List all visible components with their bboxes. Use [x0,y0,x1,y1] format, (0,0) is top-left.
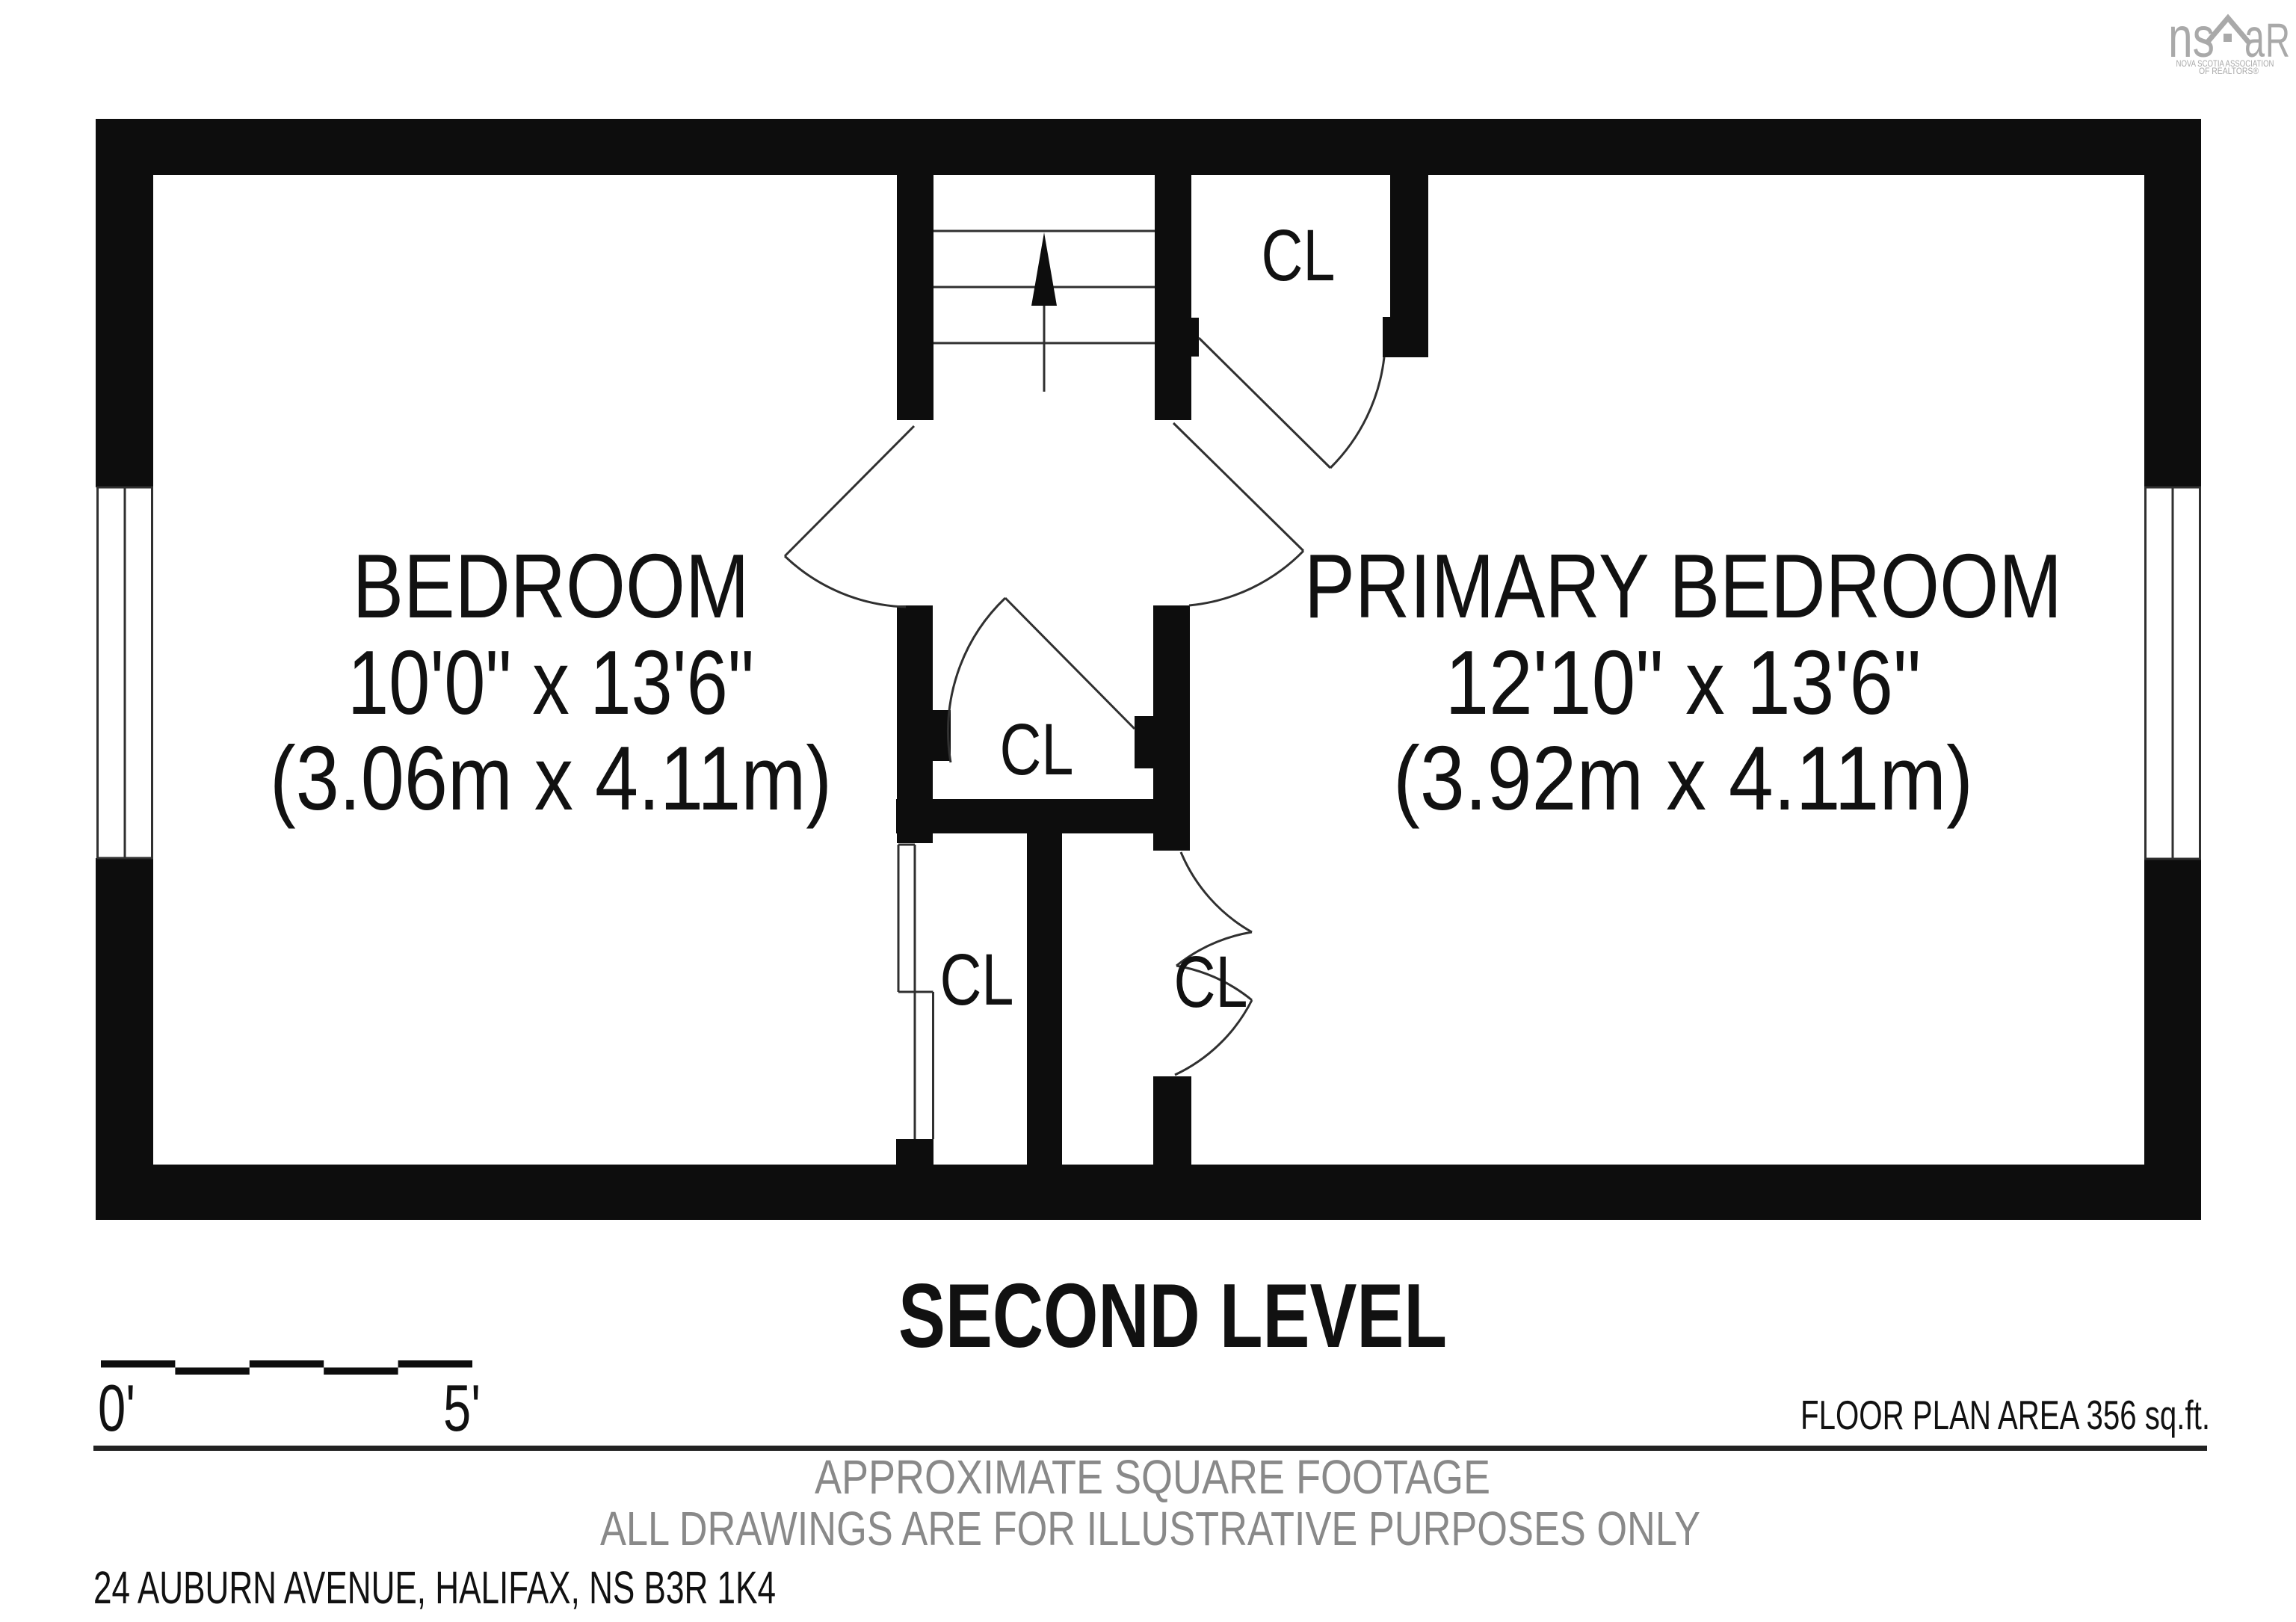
svg-text:0': 0' [98,1371,135,1445]
svg-text:OF REALTORS®: OF REALTORS® [2199,67,2259,76]
svg-text:SECOND LEVEL: SECOND LEVEL [898,1265,1447,1366]
svg-text:10'0" x 13'6": 10'0" x 13'6" [348,632,754,733]
svg-text:24 AUBURN AVENUE, HALIFAX, NS: 24 AUBURN AVENUE, HALIFAX, NS B3R 1K4 [93,1562,776,1613]
svg-text:CL: CL [1262,215,1336,296]
svg-text:FLOOR PLAN AREA 356 sq.ft.: FLOOR PLAN AREA 356 sq.ft. [1800,1392,2210,1438]
svg-text:BEDROOM: BEDROOM [353,535,750,637]
svg-text:CL: CL [1000,709,1074,790]
svg-text:CL: CL [940,939,1014,1020]
svg-text:12'10" x 13'6": 12'10" x 13'6" [1445,632,1922,733]
svg-text:ALL DRAWINGS ARE FOR ILLUSTRAT: ALL DRAWINGS ARE FOR ILLUSTRATIVE PURPOS… [600,1502,1700,1555]
svg-text:CL: CL [1174,941,1248,1023]
svg-text:(3.06m x 4.11m): (3.06m x 4.11m) [270,727,832,829]
svg-text:5': 5' [443,1371,481,1445]
svg-text:(3.92m x 4.11m): (3.92m x 4.11m) [1393,727,1973,829]
svg-text:APPROXIMATE SQUARE FOOTAGE: APPROXIMATE SQUARE FOOTAGE [815,1450,1490,1504]
svg-text:PRIMARY BEDROOM: PRIMARY BEDROOM [1304,535,2062,637]
